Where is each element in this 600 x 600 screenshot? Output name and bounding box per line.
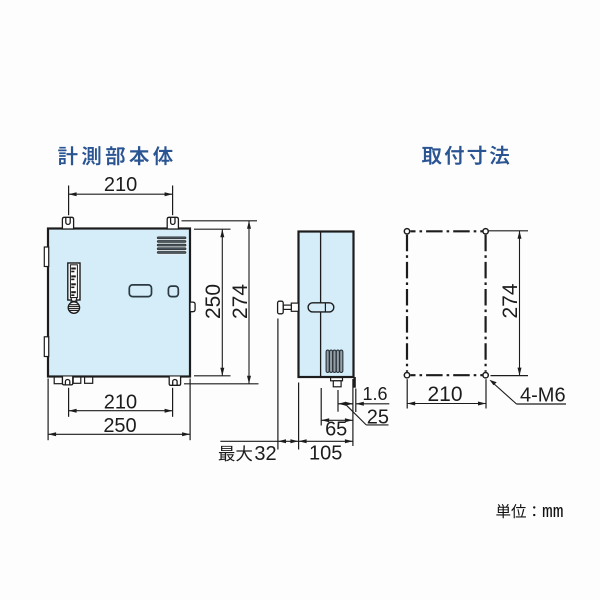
- svg-text:250: 250: [202, 284, 225, 319]
- svg-text:105: 105: [309, 442, 342, 464]
- svg-text:274: 274: [229, 284, 252, 319]
- svg-text:210: 210: [427, 383, 462, 406]
- svg-text:32: 32: [254, 443, 276, 465]
- svg-text:65: 65: [325, 419, 347, 441]
- svg-text:250: 250: [103, 415, 136, 437]
- svg-text:210: 210: [104, 391, 137, 413]
- svg-text:274: 274: [499, 283, 522, 318]
- svg-text:4-M6: 4-M6: [520, 385, 566, 407]
- svg-text:25: 25: [367, 407, 389, 429]
- svg-text:1.6: 1.6: [363, 384, 388, 404]
- svg-text:210: 210: [104, 174, 137, 196]
- svg-text:mm: mm: [542, 503, 564, 523]
